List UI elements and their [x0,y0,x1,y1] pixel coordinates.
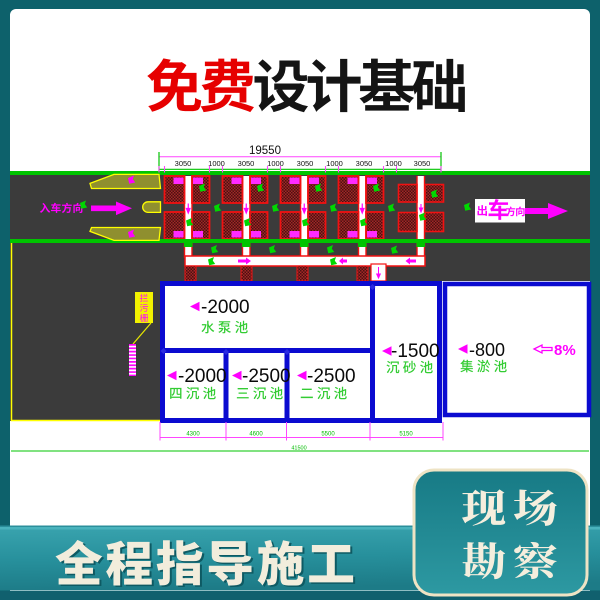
svg-text:-2500: -2500 [242,366,291,387]
svg-text:3050: 3050 [238,159,255,168]
svg-text:3050: 3050 [414,159,431,168]
svg-text:-2500: -2500 [307,366,356,387]
svg-text:8%: 8% [554,342,576,359]
svg-text:41500: 41500 [291,446,306,452]
svg-text:4300: 4300 [186,432,200,438]
svg-text:4600: 4600 [249,432,263,438]
svg-text:3050: 3050 [356,159,373,168]
svg-text:-2000: -2000 [201,297,250,318]
svg-text:3050: 3050 [175,159,192,168]
svg-text:5500: 5500 [321,432,335,438]
svg-text:1000: 1000 [385,159,402,168]
svg-text:-1500: -1500 [391,341,440,362]
svg-text:5150: 5150 [399,432,413,438]
svg-text:1000: 1000 [326,159,343,168]
svg-text:-2000: -2000 [178,366,227,387]
svg-text:19550: 19550 [249,145,281,157]
svg-text:1000: 1000 [267,159,284,168]
svg-text:3050: 3050 [297,159,314,168]
svg-text:-800: -800 [469,340,505,360]
